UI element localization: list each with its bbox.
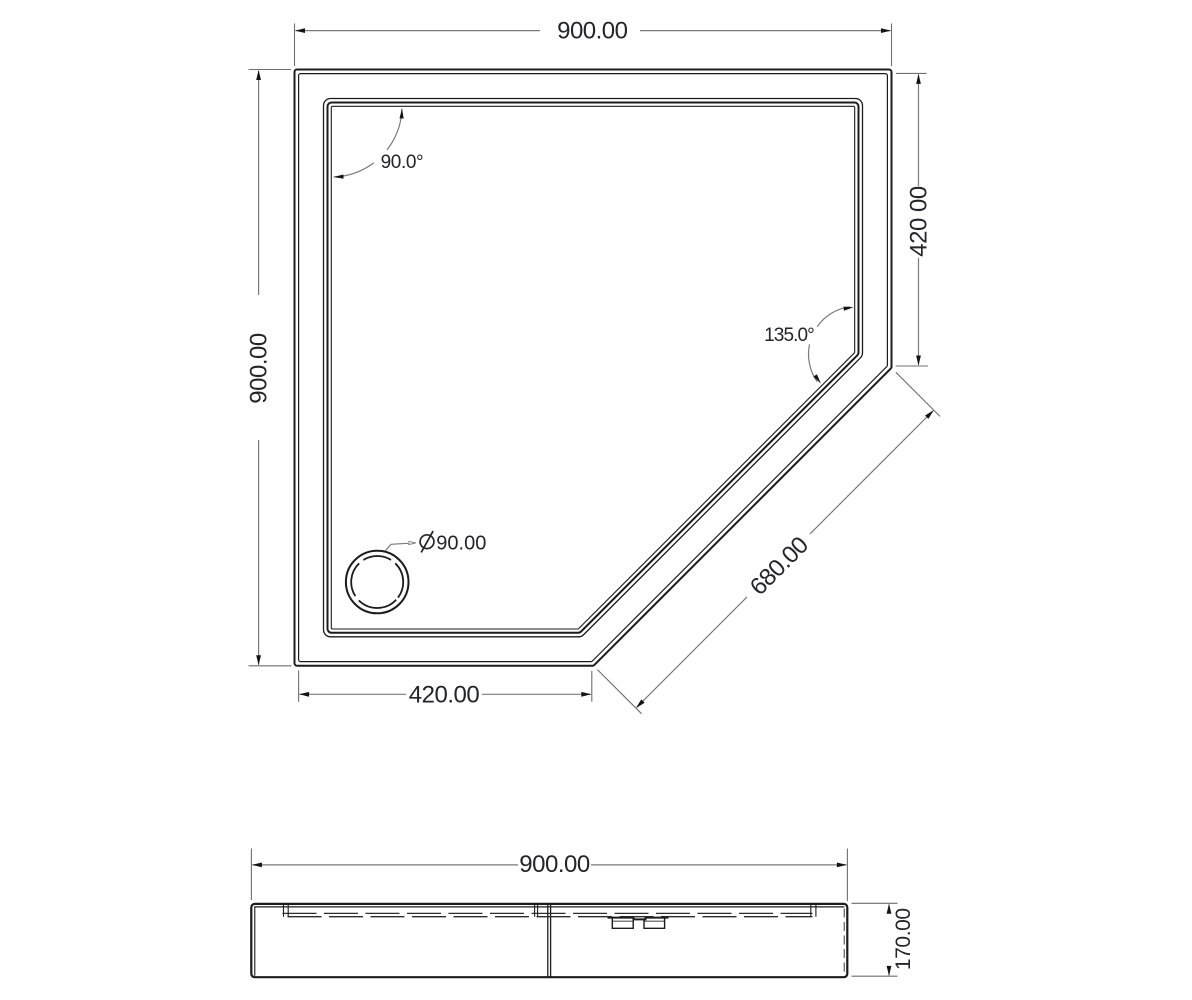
- svg-text:900.00: 900.00: [557, 18, 628, 45]
- svg-text:900.00: 900.00: [245, 333, 272, 404]
- svg-text:135.0°: 135.0°: [764, 325, 814, 346]
- svg-text:900.00: 900.00: [519, 851, 590, 878]
- svg-text:90.00: 90.00: [436, 532, 486, 554]
- svg-text:420 00: 420 00: [906, 186, 933, 257]
- svg-text:90.0°: 90.0°: [381, 152, 424, 173]
- svg-text:170.00: 170.00: [892, 908, 915, 970]
- svg-text:420.00: 420.00: [409, 681, 480, 708]
- svg-text:680.00: 680.00: [745, 532, 814, 601]
